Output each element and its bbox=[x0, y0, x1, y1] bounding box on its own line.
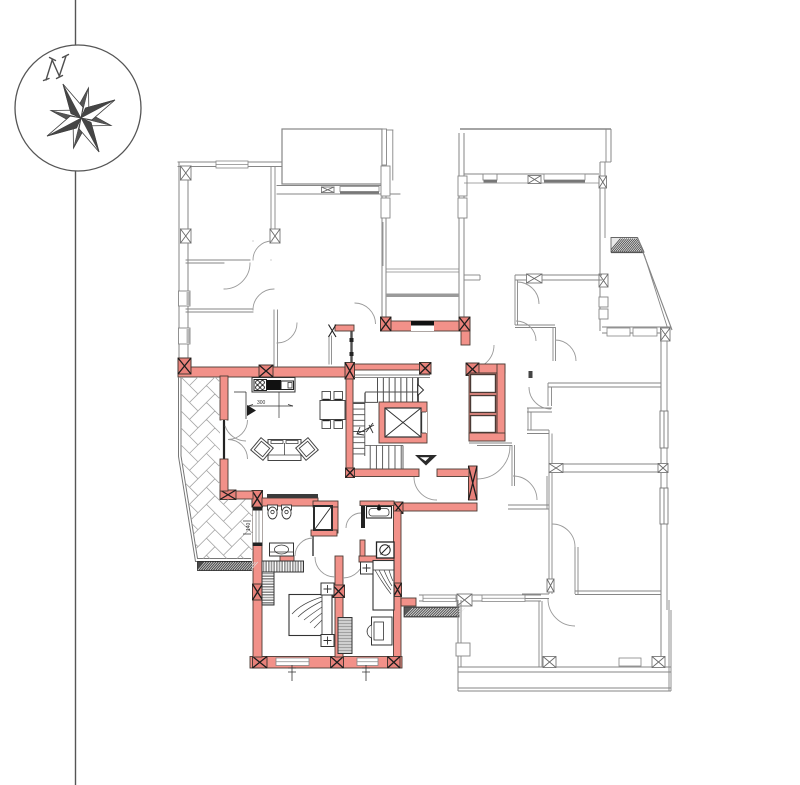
svg-text:140: 140 bbox=[246, 522, 252, 531]
svg-text:300: 300 bbox=[257, 400, 266, 406]
